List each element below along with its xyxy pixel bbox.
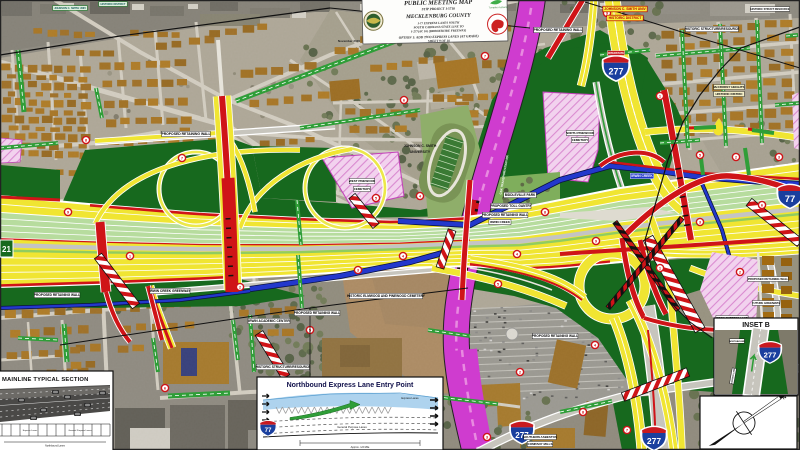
svg-text:INTERSTATE: INTERSTATE (608, 51, 624, 55)
svg-text:277: 277 (764, 351, 777, 360)
svg-text:HISTORIC DISTRICT: HISTORIC DISTRICT (609, 16, 643, 20)
svg-text:Approx. 1/2 Mile: Approx. 1/2 Mile (351, 445, 370, 449)
svg-text:PROPOSED RETAINING WALL: PROPOSED RETAINING WALL (482, 213, 528, 217)
svg-text:HISTORIC STRUCTURE/RESOURCE: HISTORIC STRUCTURE/RESOURCE (256, 365, 311, 369)
svg-text:SOUTHERN ASBESTOS: SOUTHERN ASBESTOS (523, 435, 557, 439)
svg-text:November 2015: November 2015 (338, 39, 361, 43)
svg-text:CEMETERY: CEMETERY (572, 138, 589, 142)
svg-text:21: 21 (2, 245, 11, 254)
svg-text:NORTHBOUND: NORTHBOUND (729, 341, 745, 343)
svg-text:SHEET 9 OF 10: SHEET 9 OF 10 (428, 39, 450, 43)
svg-text:UNIVERSITY: UNIVERSITY (410, 150, 431, 154)
svg-text:JOHNSON C. SMITH UNIV: JOHNSON C. SMITH UNIV (54, 6, 86, 10)
svg-text:General Purpose Lanes: General Purpose Lanes (68, 429, 92, 432)
svg-text:STIP PROJECT I-5718: STIP PROJECT I-5718 (422, 7, 456, 12)
svg-text:JOHNSON C. SMITH: JOHNSON C. SMITH (404, 144, 437, 148)
svg-text:77: 77 (785, 194, 796, 205)
svg-text:Express Lanes: Express Lanes (401, 396, 419, 400)
svg-text:FUTURE GREENWAY: FUTURE GREENWAY (752, 301, 780, 305)
svg-text:PROPOSED RETAINING WALL: PROPOSED RETAINING WALL (34, 293, 80, 297)
svg-text:IRWIN CREEK: IRWIN CREEK (631, 174, 653, 178)
svg-text:McCROREY HEIGHTS: McCROREY HEIGHTS (713, 85, 744, 89)
svg-text:Northbound Lanes: Northbound Lanes (45, 445, 65, 448)
svg-text:CEMETERY: CEMETERY (354, 187, 371, 191)
svg-text:PROPOSED RETAINING WALL: PROPOSED RETAINING WALL (533, 28, 582, 32)
svg-text:77: 77 (265, 427, 272, 434)
svg-text:Express Lanes: Express Lanes (23, 429, 38, 432)
svg-text:IRWIN CREEK GREENWAY: IRWIN CREEK GREENWAY (150, 289, 191, 293)
svg-text:Turnpike Authority: Turnpike Authority (489, 6, 509, 9)
svg-text:JOHNSON C. SMITH UNIV: JOHNSON C. SMITH UNIV (604, 7, 646, 11)
svg-text:PROPOSED RETAINING WALL: PROPOSED RETAINING WALL (532, 334, 578, 338)
svg-text:WEST PINEWOOD: WEST PINEWOOD (349, 179, 376, 183)
svg-text:PROPOSED RETAINING WALL: PROPOSED RETAINING WALL (294, 311, 340, 315)
svg-text:HISTORIC DISTRICT: HISTORIC DISTRICT (100, 2, 125, 6)
svg-text:HISTORIC DISTRIC: HISTORIC DISTRIC (715, 92, 743, 96)
svg-text:COMPANY MILLS: COMPANY MILLS (528, 442, 553, 446)
svg-text:277: 277 (647, 436, 662, 446)
svg-text:General Purpose Lanes: General Purpose Lanes (337, 425, 367, 429)
svg-text:PROPOSED RETAINING WALL: PROPOSED RETAINING WALL (748, 277, 789, 281)
svg-text:PROPOSED TOLL GANTRY: PROPOSED TOLL GANTRY (490, 204, 532, 208)
svg-text:PROPOSED RETAINING WALL: PROPOSED RETAINING WALL (161, 132, 210, 136)
svg-text:HISTORIC ELMWOOD AND PINEWOOD: HISTORIC ELMWOOD AND PINEWOOD CEMETERY (347, 294, 426, 298)
svg-text:Northbound Express Lane Entry: Northbound Express Lane Entry Point (287, 382, 414, 389)
svg-text:NORTH PINEWOOD: NORTH PINEWOOD (566, 131, 595, 135)
svg-text:IRWIN CREEK: IRWIN CREEK (490, 220, 511, 224)
svg-text:BIDDLEVILLE PARK: BIDDLEVILLE PARK (505, 193, 536, 197)
svg-text:HISTORIC STRUCT RESOURCE: HISTORIC STRUCT RESOURCE (750, 7, 789, 11)
svg-text:HISTORIC STRUCTURE/RESOURCE: HISTORIC STRUCTURE/RESOURCE (685, 27, 740, 31)
svg-text:277: 277 (608, 67, 623, 77)
svg-text:IRWIN ACADEMIC CENTER: IRWIN ACADEMIC CENTER (248, 319, 290, 323)
svg-text:MAINLINE TYPICAL SECTION: MAINLINE TYPICAL SECTION (2, 377, 89, 383)
